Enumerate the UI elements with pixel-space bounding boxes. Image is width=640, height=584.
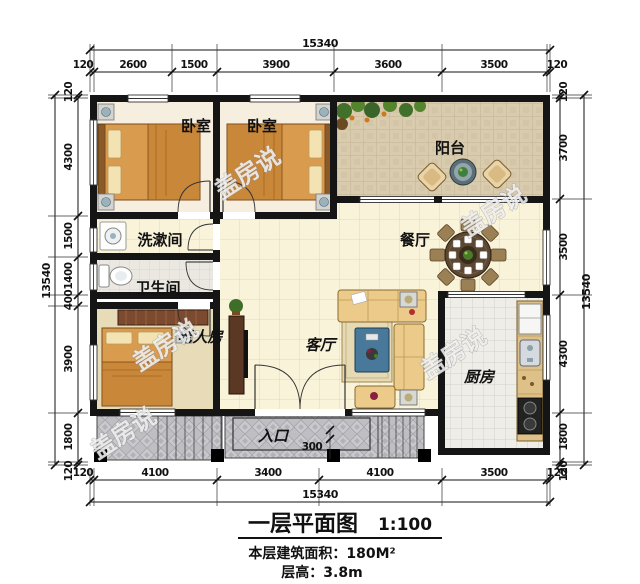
room-label-dining: 餐厅: [400, 231, 430, 249]
column: [418, 449, 431, 462]
bed-symbol: [98, 124, 200, 200]
room-label-bathroom: 卫生间: [135, 279, 180, 297]
dim-value: 4100: [141, 467, 168, 479]
wall: [438, 448, 550, 455]
balcony-table-symbol: [450, 159, 476, 185]
title-block: 一层平面图 1:100 本层建筑面积：180M² 层高：3.8m: [238, 512, 442, 581]
dim-bottom-segments: 120 4100 3400 4100 3500 120: [73, 467, 568, 479]
dim-value: 1500: [63, 222, 75, 249]
dim-value: 120: [73, 467, 94, 479]
sink-symbol: [520, 340, 540, 366]
toilet-symbol: [99, 265, 132, 287]
plan-scale: 1:100: [378, 515, 432, 535]
wardrobe-symbol: [118, 310, 208, 325]
dim-value: 120: [558, 461, 570, 482]
dim-value: 4300: [63, 143, 75, 170]
dim-top-total: 15340: [302, 37, 339, 50]
wall: [90, 253, 220, 260]
dim-value: 4100: [366, 467, 393, 479]
dim-value: 3700: [558, 134, 570, 161]
dim-value: 3500: [480, 59, 507, 71]
floor-plan-drawing: 15340 120 2600 1500 3900 3600 3500 120 1…: [0, 0, 640, 584]
dim-value: 2600: [119, 59, 146, 71]
dim-value: 120: [73, 59, 94, 71]
dim-value: 1500: [180, 59, 207, 71]
dim-value: 120: [63, 82, 75, 103]
dim-value: 120: [547, 59, 568, 71]
plan-area: 本层建筑面积：180M²: [248, 545, 395, 562]
column: [327, 449, 340, 462]
room-label-entrance: 入口: [258, 427, 290, 445]
room-label-kitchen: 厨房: [463, 368, 496, 386]
wall: [213, 302, 220, 416]
dim-value: 400: [63, 290, 75, 311]
wall: [213, 102, 220, 219]
room-label-balcony: 阳台: [435, 139, 465, 157]
room-label-bedroom-right: 卧室: [247, 117, 277, 135]
fridge-symbol: [519, 304, 541, 334]
dim-value: 3500: [558, 233, 570, 260]
dim-value: 120: [558, 82, 570, 103]
dim-value: 1800: [558, 423, 570, 450]
dim-value: 1400: [63, 262, 75, 289]
dim-top-segments: 120 2600 1500 3900 3600 3500 120: [73, 59, 568, 71]
dim-value: 1800: [63, 423, 75, 450]
dim-value: 3500: [480, 467, 507, 479]
room-label-washroom: 洗漱间: [137, 231, 182, 249]
plan-floor-height: 层高：3.8m: [281, 564, 362, 581]
dim-left-segments: 120 4300 1500 1400 400 3900 1800 120: [63, 82, 75, 482]
floor-plan-canvas: 15340 120 2600 1500 3900 3600 3500 120 1…: [0, 0, 640, 584]
dim-value: 3900: [262, 59, 289, 71]
dim-value: 3600: [374, 59, 401, 71]
column: [211, 449, 224, 462]
dim-value: 4300: [558, 340, 570, 367]
dim-right-total: 13540: [580, 273, 593, 310]
dim-value: 3400: [254, 467, 281, 479]
dim-value: 300: [302, 441, 323, 453]
kitchen-counter-symbol: [517, 301, 543, 441]
dim-bottom-total: 15340: [302, 488, 339, 501]
dim-value: 120: [63, 461, 75, 482]
dim-value: 3900: [63, 345, 75, 372]
room-label-living: 客厅: [305, 336, 338, 354]
room-label-bedroom-left: 卧室: [181, 117, 211, 135]
washing-machine-symbol: [100, 222, 126, 250]
dim-left-total: 13540: [40, 262, 53, 299]
plan-title: 一层平面图: [248, 512, 358, 537]
